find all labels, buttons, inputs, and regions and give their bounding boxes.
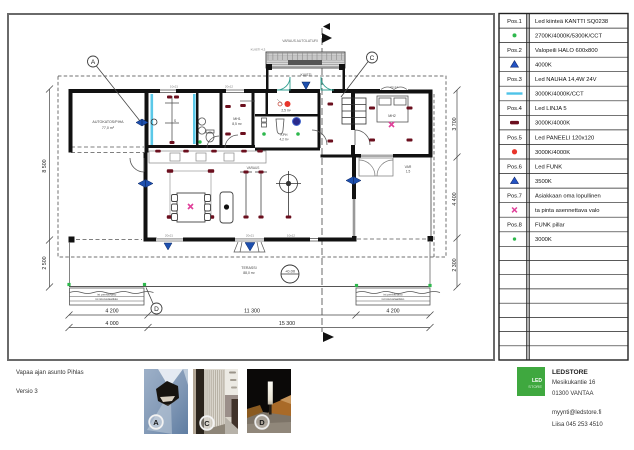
svg-text:Led PANEELI 120x120: Led PANEELI 120x120 (535, 135, 594, 141)
svg-text:01300 VANTAA: 01300 VANTAA (552, 391, 593, 397)
svg-text:77,0 m²: 77,0 m² (102, 126, 115, 130)
svg-text:3000K: 3000K (535, 237, 552, 243)
svg-text:TERASSI: TERASSI (241, 266, 256, 270)
svg-text:2 500: 2 500 (42, 256, 48, 269)
svg-text:20x12: 20x12 (225, 85, 234, 89)
svg-text:VARAUS: VARAUS (247, 166, 260, 170)
svg-text:3000K/4000K: 3000K/4000K (535, 121, 570, 127)
svg-text:D: D (259, 418, 265, 427)
svg-text:C: C (204, 419, 210, 428)
svg-text:Led FUNK: Led FUNK (535, 164, 562, 170)
svg-text:MH2: MH2 (388, 114, 396, 118)
svg-text:8,5 m²: 8,5 m² (232, 122, 242, 126)
svg-text:Pos.1: Pos.1 (507, 19, 522, 25)
svg-text:MH1: MH1 (233, 117, 241, 121)
svg-text:20x21: 20x21 (165, 234, 174, 238)
svg-text:ist istutuslaatikko: ist istutuslaatikko (95, 297, 118, 301)
svg-text:3000K/4000K/CCT: 3000K/4000K/CCT (535, 92, 584, 98)
svg-text:FUNK pillar: FUNK pillar (535, 223, 565, 229)
svg-text:3500K: 3500K (535, 179, 552, 185)
svg-text:1,5: 1,5 (406, 170, 411, 174)
svg-text:11 300: 11 300 (244, 309, 260, 315)
svg-text:3 700: 3 700 (452, 117, 458, 130)
svg-text:Pos.8: Pos.8 (507, 223, 522, 229)
svg-text:4 200: 4 200 (386, 309, 399, 315)
svg-text:Pos.7: Pos.7 (507, 193, 522, 199)
svg-text:2,5 m²: 2,5 m² (281, 109, 291, 113)
svg-text:KUISTI 4,3: KUISTI 4,3 (251, 48, 266, 52)
svg-text:VAR: VAR (405, 165, 412, 169)
svg-text:+0.00: +0.00 (285, 269, 296, 274)
svg-text:Led kiinteä KANTTI SQ0238: Led kiinteä KANTTI SQ0238 (535, 19, 608, 25)
svg-text:10x21: 10x21 (170, 85, 179, 89)
svg-text:Led NAUHA 14,4W 24V: Led NAUHA 14,4W 24V (535, 77, 597, 83)
svg-text:Vapaa ajan asunto Pihlas: Vapaa ajan asunto Pihlas (16, 370, 84, 376)
svg-text:LEDSTORE: LEDSTORE (552, 369, 588, 376)
svg-text:4 400: 4 400 (452, 192, 458, 205)
svg-text:Pos.3: Pos.3 (507, 77, 522, 83)
svg-text:Pos.6: Pos.6 (507, 164, 522, 170)
svg-text:Liisa 045 253 4510: Liisa 045 253 4510 (552, 422, 603, 428)
svg-text:4000K: 4000K (535, 63, 552, 69)
svg-text:KPH: KPH (281, 133, 289, 137)
svg-text:20x12: 20x12 (390, 85, 399, 89)
svg-text:myynti@ledstore.fi: myynti@ledstore.fi (552, 410, 601, 416)
svg-text:4,2 m²: 4,2 m² (279, 138, 288, 142)
svg-text:Valopeili HALO 600x800: Valopeili HALO 600x800 (535, 48, 598, 54)
svg-text:A: A (153, 418, 159, 427)
svg-text:Led LINJA 5: Led LINJA 5 (535, 106, 567, 112)
svg-text:D: D (154, 306, 159, 313)
svg-text:Asiakkaan oma lopullinen: Asiakkaan oma lopullinen (535, 193, 601, 199)
svg-text:88,0 m²: 88,0 m² (243, 271, 255, 275)
svg-text:A: A (91, 59, 96, 66)
svg-text:4 000: 4 000 (105, 321, 118, 327)
svg-text:10x12: 10x12 (287, 234, 296, 238)
svg-text:ist penkki/taso: ist penkki/taso (383, 293, 402, 297)
svg-text:C: C (370, 55, 375, 62)
svg-text:2700K/4000K/5300K/CCT: 2700K/4000K/5300K/CCT (535, 33, 602, 39)
svg-text:Versio 3: Versio 3 (16, 389, 38, 395)
svg-text:ist istutuslaatikko: ist istutuslaatikko (382, 297, 405, 301)
svg-text:15 300: 15 300 (279, 321, 295, 327)
svg-text:Pos.2: Pos.2 (507, 48, 522, 54)
svg-text:STORE: STORE (528, 384, 542, 389)
svg-text:KUISTI: KUISTI (301, 73, 312, 77)
svg-text:ist penkki/taso: ist penkki/taso (97, 293, 116, 297)
svg-text:Mesikukantie 16: Mesikukantie 16 (552, 380, 596, 386)
svg-text:ta pinta asennettava valo: ta pinta asennettava valo (535, 208, 599, 214)
svg-text:8 500: 8 500 (42, 159, 48, 172)
svg-text:2 300: 2 300 (452, 258, 458, 271)
svg-text:VARAUS AUTOLATURI: VARAUS AUTOLATURI (282, 39, 318, 43)
svg-text:Pos.5: Pos.5 (507, 135, 522, 141)
svg-text:20x21: 20x21 (246, 234, 255, 238)
svg-text:Pos.4: Pos.4 (507, 106, 523, 112)
svg-text:4 200: 4 200 (105, 309, 118, 315)
svg-text:AUTOKATOS/PIHA: AUTOKATOS/PIHA (92, 120, 124, 124)
svg-text:3000K/4000K: 3000K/4000K (535, 150, 570, 156)
